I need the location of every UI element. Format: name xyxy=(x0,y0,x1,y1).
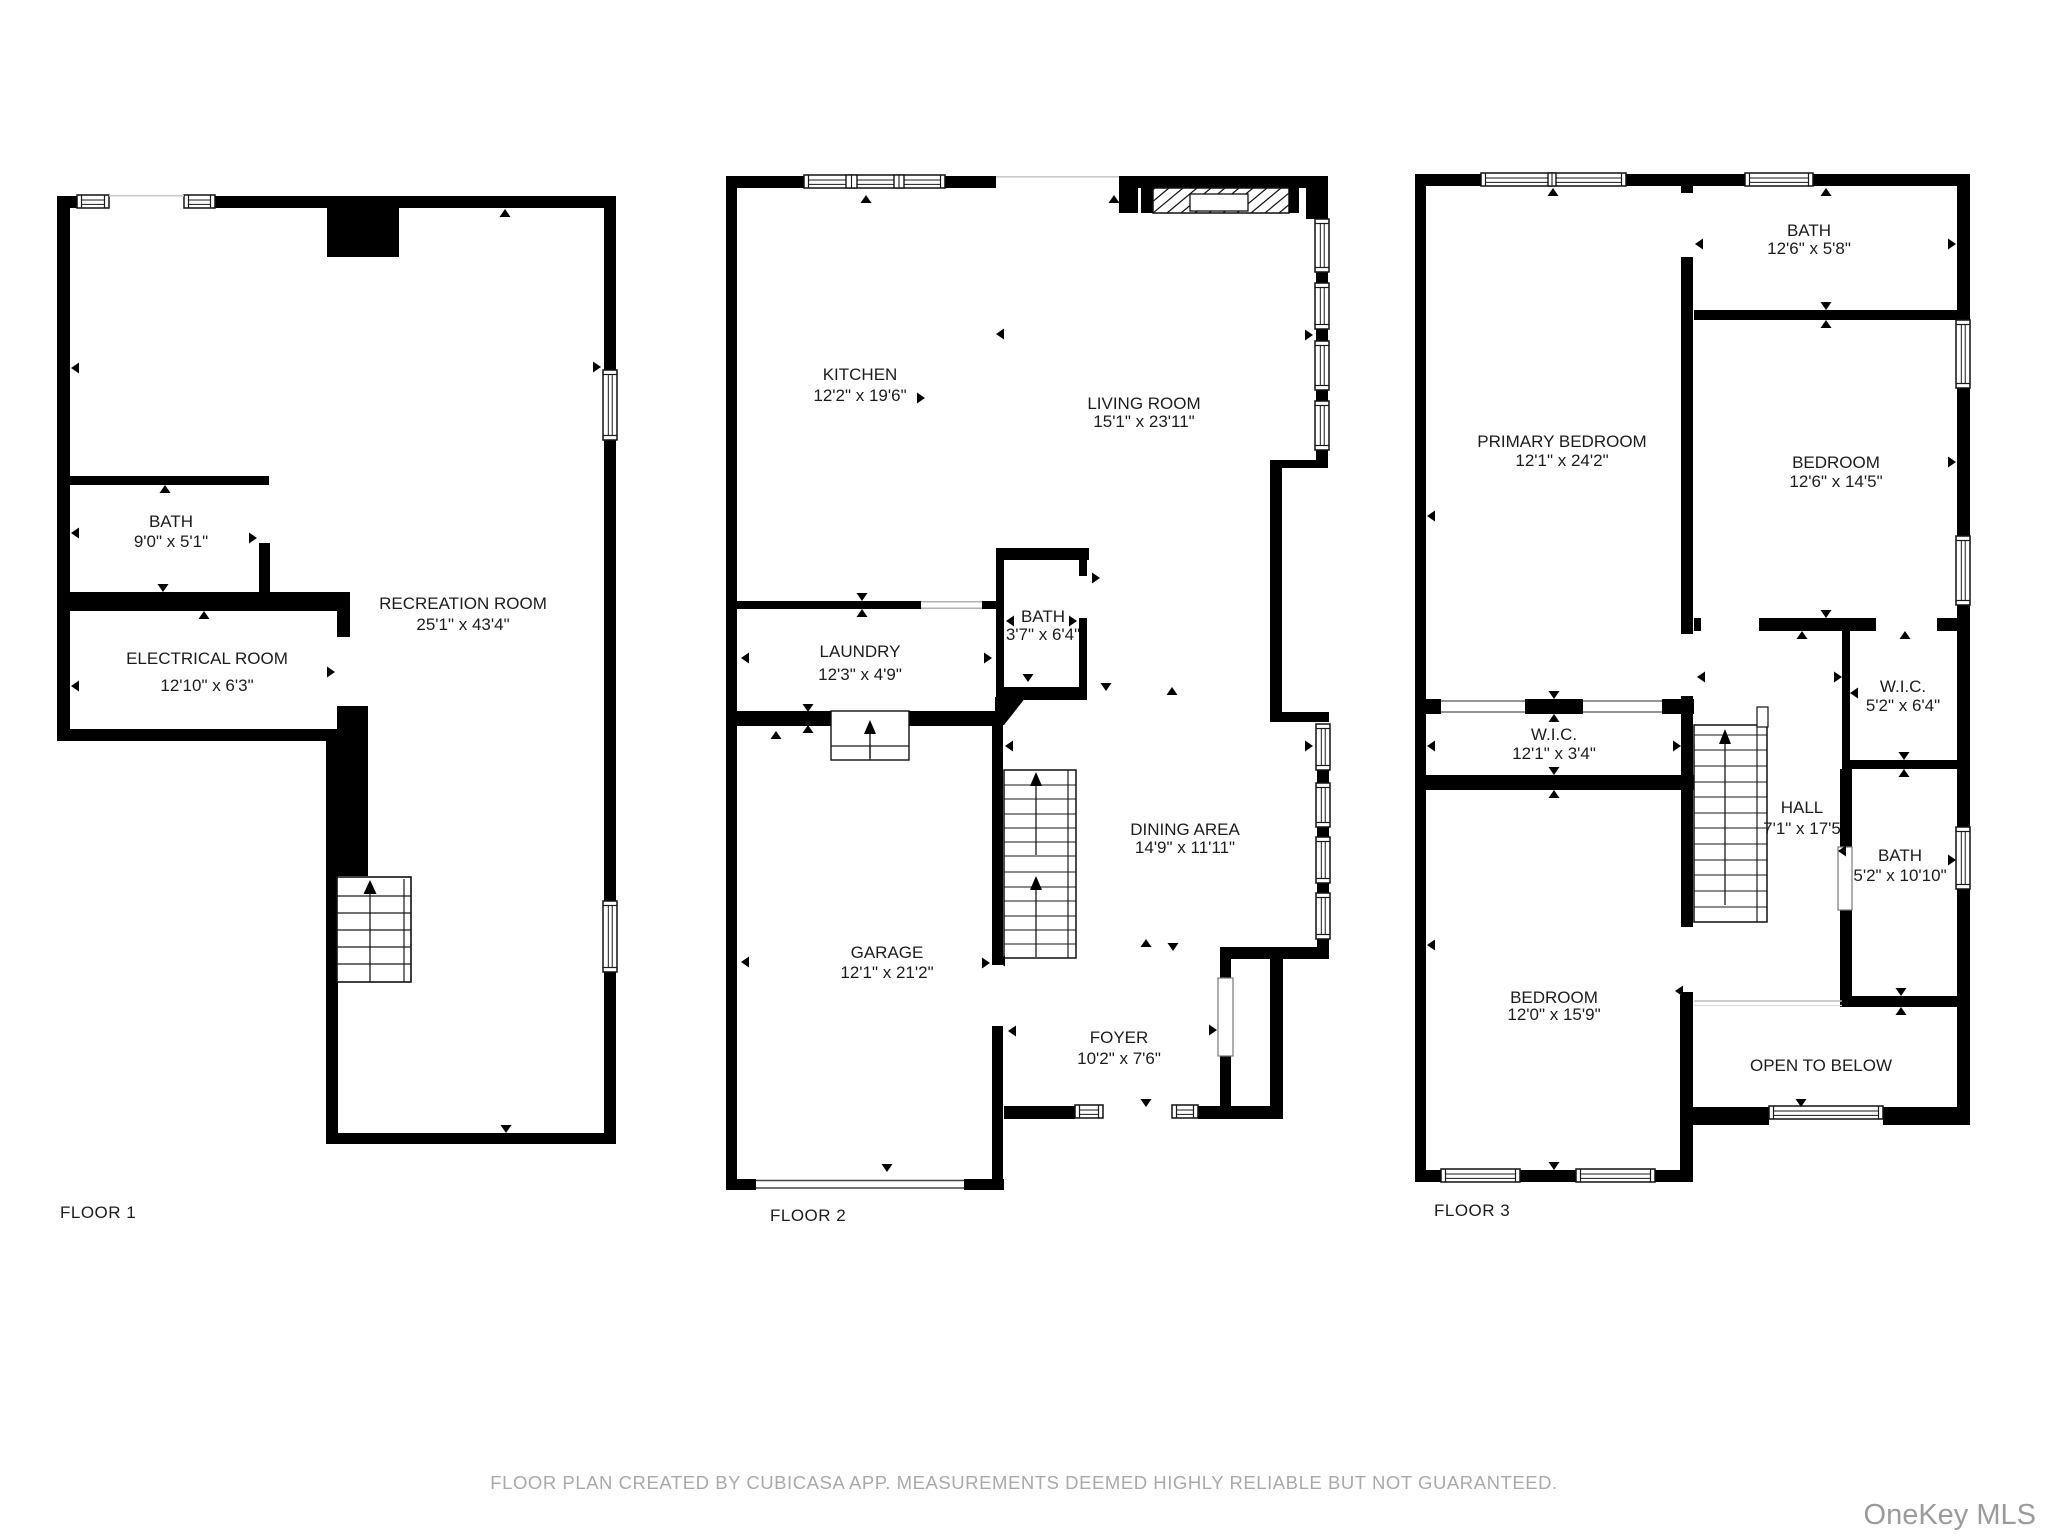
svg-text:12'6" x 5'8": 12'6" x 5'8" xyxy=(1767,239,1851,258)
svg-text:BEDROOM: BEDROOM xyxy=(1792,453,1880,472)
svg-text:OPEN TO BELOW: OPEN TO BELOW xyxy=(1750,1056,1892,1075)
svg-text:12'1" x 24'2": 12'1" x 24'2" xyxy=(1515,451,1608,470)
svg-text:14'9" x 11'11": 14'9" x 11'11" xyxy=(1135,838,1235,857)
svg-text:5'2" x 6'4": 5'2" x 6'4" xyxy=(1866,696,1940,715)
svg-text:FOYER: FOYER xyxy=(1090,1028,1149,1047)
svg-text:FLOOR 1: FLOOR 1 xyxy=(60,1203,136,1222)
svg-text:BATH: BATH xyxy=(1787,221,1831,240)
svg-text:W.I.C.: W.I.C. xyxy=(1880,677,1926,696)
svg-text:10'2" x 7'6": 10'2" x 7'6" xyxy=(1077,1049,1161,1068)
svg-text:12'10" x 6'3": 12'10" x 6'3" xyxy=(160,676,253,695)
svg-text:GARAGE: GARAGE xyxy=(851,943,924,962)
svg-text:12'6" x 14'5": 12'6" x 14'5" xyxy=(1789,472,1882,491)
svg-text:BATH: BATH xyxy=(1021,607,1065,626)
svg-text:W.I.C.: W.I.C. xyxy=(1531,725,1577,744)
svg-text:KITCHEN: KITCHEN xyxy=(823,365,898,384)
svg-text:OneKey MLS: OneKey MLS xyxy=(1864,1499,2036,1531)
svg-text:12'3" x 4'9": 12'3" x 4'9" xyxy=(818,665,902,684)
svg-text:FLOOR PLAN CREATED BY CUBICASA: FLOOR PLAN CREATED BY CUBICASA APP. MEAS… xyxy=(490,1472,1557,1493)
svg-text:RECREATION ROOM: RECREATION ROOM xyxy=(379,594,547,613)
svg-text:DINING AREA: DINING AREA xyxy=(1130,820,1240,839)
svg-text:BATH: BATH xyxy=(1878,846,1922,865)
svg-text:3'7" x 6'4": 3'7" x 6'4" xyxy=(1006,625,1080,644)
svg-text:LAUNDRY: LAUNDRY xyxy=(820,642,901,661)
svg-text:FLOOR 3: FLOOR 3 xyxy=(1434,1201,1510,1220)
svg-text:12'2" x 19'6": 12'2" x 19'6" xyxy=(813,386,906,405)
svg-text:12'1" x 3'4": 12'1" x 3'4" xyxy=(1512,744,1596,763)
svg-text:ELECTRICAL ROOM: ELECTRICAL ROOM xyxy=(126,649,288,668)
svg-text:9'0" x 5'1": 9'0" x 5'1" xyxy=(134,532,208,551)
svg-text:25'1" x 43'4": 25'1" x 43'4" xyxy=(416,615,509,634)
svg-text:5'2" x 10'10": 5'2" x 10'10" xyxy=(1853,866,1946,885)
svg-text:HALL: HALL xyxy=(1781,798,1824,817)
svg-text:BATH: BATH xyxy=(149,512,193,531)
svg-text:12'0" x 15'9": 12'0" x 15'9" xyxy=(1507,1005,1600,1024)
svg-text:15'1" x 23'11": 15'1" x 23'11" xyxy=(1093,412,1194,431)
svg-text:LIVING ROOM: LIVING ROOM xyxy=(1087,394,1200,413)
svg-text:7'1" x 17'5: 7'1" x 17'5 xyxy=(1763,819,1841,838)
svg-text:12'1" x 21'2": 12'1" x 21'2" xyxy=(840,963,933,982)
svg-text:FLOOR 2: FLOOR 2 xyxy=(770,1206,846,1225)
svg-text:PRIMARY BEDROOM: PRIMARY BEDROOM xyxy=(1477,432,1646,451)
